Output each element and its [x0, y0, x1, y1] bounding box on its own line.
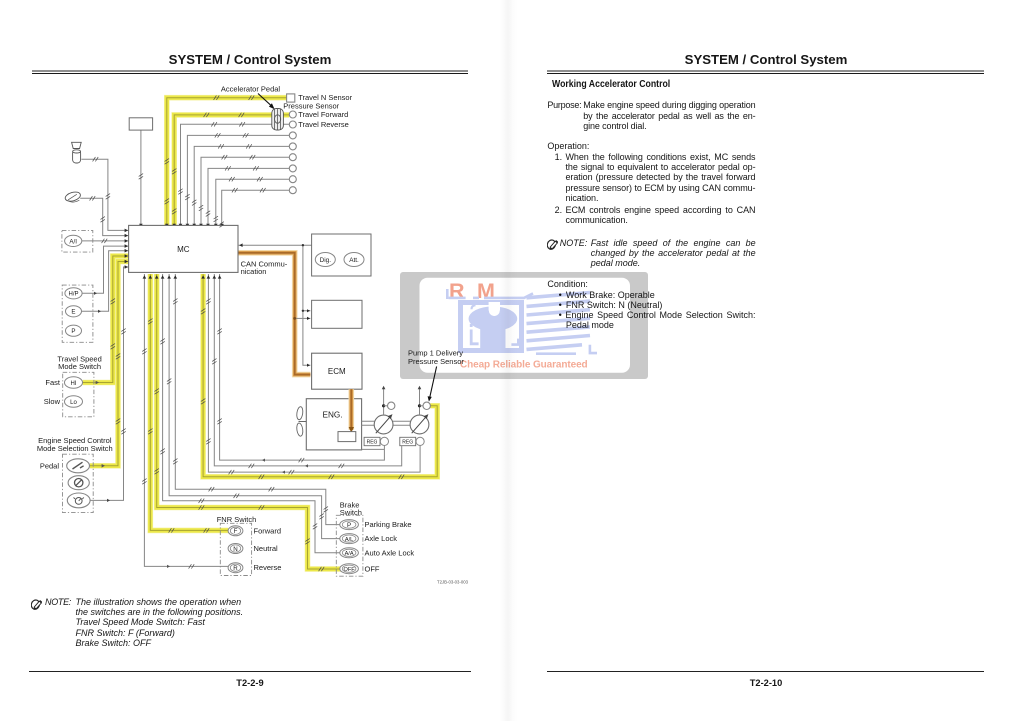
svg-text:Accelerator Pedal: Accelerator Pedal: [221, 85, 281, 94]
svg-text:Pedal: Pedal: [40, 462, 60, 471]
svg-text:OFF: OFF: [344, 567, 356, 573]
svg-text:F: F: [234, 528, 238, 535]
svg-text:A/A: A/A: [345, 551, 354, 557]
svg-text:Travel Forward: Travel Forward: [298, 110, 348, 119]
svg-text:Travel Reverse: Travel Reverse: [298, 120, 349, 129]
svg-text:MC: MC: [177, 245, 190, 254]
svg-text:Slow: Slow: [44, 397, 61, 406]
svg-text:nication: nication: [241, 267, 267, 276]
svg-text:Auto Axle Lock: Auto Axle Lock: [365, 548, 415, 557]
svg-text:P: P: [347, 522, 351, 529]
svg-text:A/I: A/I: [69, 238, 77, 245]
svg-text:Axle Lock: Axle Lock: [365, 534, 398, 543]
svg-text:OFF: OFF: [365, 564, 380, 573]
svg-text:Mode Selection Switch: Mode Selection Switch: [37, 444, 113, 453]
svg-text:Parking Brake: Parking Brake: [365, 520, 412, 529]
svg-text:Cheap Reliable Guaranteed: Cheap Reliable Guaranteed: [460, 360, 588, 371]
svg-text:HI: HI: [71, 381, 77, 387]
svg-text:REG: REG: [367, 440, 378, 446]
svg-text:N: N: [233, 546, 237, 553]
svg-text:Dig.: Dig.: [320, 257, 332, 264]
svg-text:E: E: [71, 309, 75, 316]
svg-text:ECM: ECM: [328, 367, 346, 376]
svg-text:A/L: A/L: [345, 537, 353, 543]
svg-text:Pressure Sensor: Pressure Sensor: [283, 101, 339, 110]
svg-text:Forward: Forward: [254, 526, 282, 535]
svg-text:ENG.: ENG.: [322, 411, 342, 420]
svg-text:Neutral: Neutral: [254, 544, 279, 553]
svg-text:Fast: Fast: [45, 378, 61, 387]
svg-text:Lo: Lo: [70, 400, 77, 406]
svg-text:Reverse: Reverse: [254, 563, 282, 572]
svg-text:P: P: [71, 328, 75, 335]
svg-text:T2JB-03-03-003: T2JB-03-03-003: [437, 580, 469, 585]
svg-text:Mode Switch: Mode Switch: [58, 362, 101, 371]
svg-text:Att.: Att.: [349, 257, 359, 264]
svg-text:R: R: [233, 565, 238, 572]
svg-text:FNR Switch: FNR Switch: [217, 515, 257, 524]
svg-text:H/P: H/P: [68, 292, 78, 298]
svg-text:REG: REG: [402, 440, 413, 446]
